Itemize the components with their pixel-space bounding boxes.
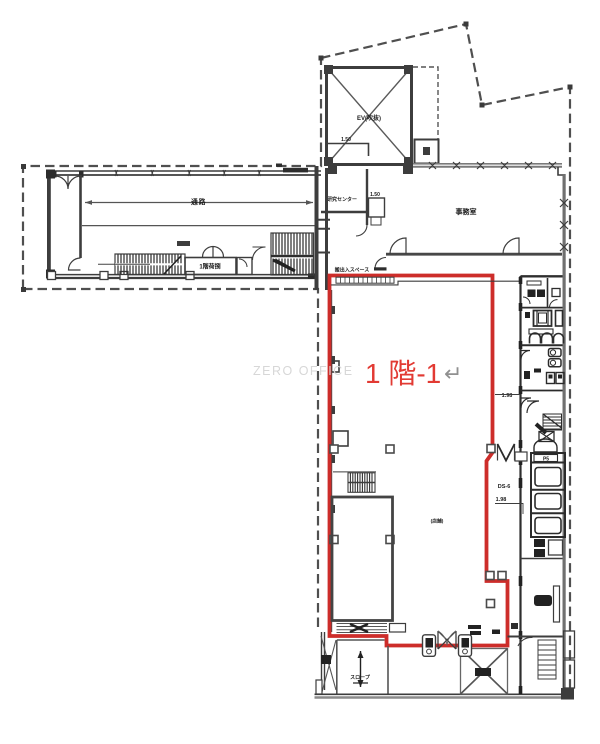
svg-text:事務室: 事務室 xyxy=(456,207,477,216)
svg-text:研究センター: 研究センター xyxy=(327,196,357,203)
svg-text:搬出入スペース: 搬出入スペース xyxy=(334,267,369,274)
svg-text:通路: 通路 xyxy=(191,197,207,206)
svg-text:↵: ↵ xyxy=(444,361,462,386)
svg-text:1 階-1: 1 階-1 xyxy=(365,358,441,389)
svg-text:1階荷捌: 1階荷捌 xyxy=(199,263,220,271)
svg-text:1.98: 1.98 xyxy=(502,393,513,399)
svg-text:1.50: 1.50 xyxy=(370,192,380,198)
svg-text:スロープ: スロープ xyxy=(350,674,371,681)
svg-text:(店舗): (店舗) xyxy=(431,518,444,525)
svg-text:1.98: 1.98 xyxy=(496,497,507,503)
svg-text:DS-6: DS-6 xyxy=(498,484,511,490)
svg-text:EV(吹抜): EV(吹抜) xyxy=(357,114,381,122)
svg-text:1.50: 1.50 xyxy=(341,137,351,143)
svg-text:ZERO OFFICE: ZERO OFFICE xyxy=(253,364,354,378)
